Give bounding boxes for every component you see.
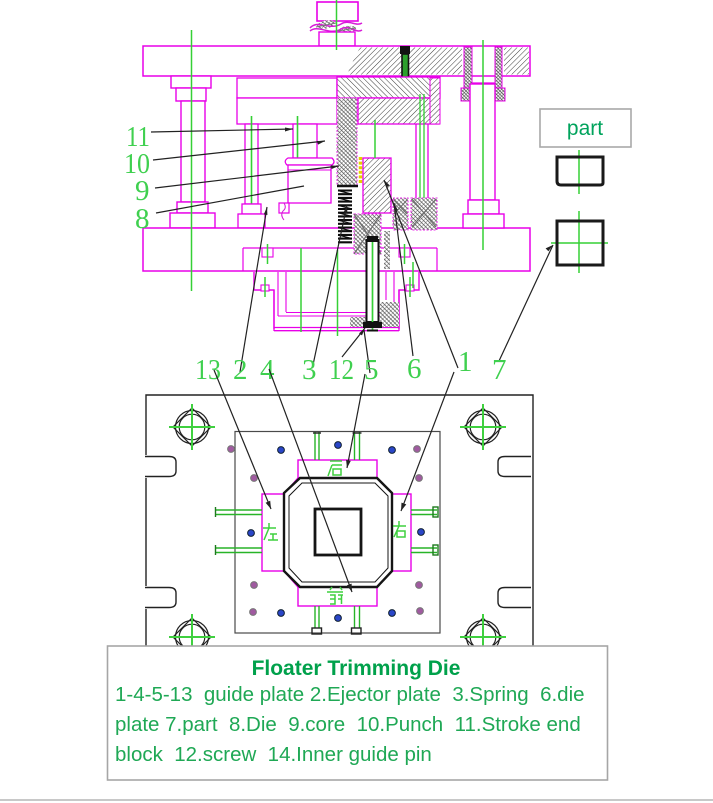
svg-text:7: 7 xyxy=(492,354,507,386)
svg-text:4: 4 xyxy=(260,354,275,386)
svg-text:2: 2 xyxy=(233,354,248,386)
svg-text:12: 12 xyxy=(329,354,354,386)
svg-text:block 12.screw 14.Inner guid: block 12.screw 14.Inner guide pin xyxy=(115,743,432,766)
svg-text:13: 13 xyxy=(195,354,221,386)
svg-text:1-4-5-13 guide plate 2.Ejecto: 1-4-5-13 guide plate 2.Ejector plate 3.S… xyxy=(115,683,585,706)
svg-text:5: 5 xyxy=(364,354,379,386)
svg-text:6: 6 xyxy=(407,353,422,385)
svg-text:plate 7.part 8.Die 9.core 1: plate 7.part 8.Die 9.core 10.Punch 11.St… xyxy=(115,713,581,736)
svg-text:part: part xyxy=(567,117,603,140)
svg-text:8: 8 xyxy=(135,203,150,235)
svg-text:3: 3 xyxy=(302,354,317,386)
svg-text:1: 1 xyxy=(458,346,473,378)
svg-text:Floater Trimming Die: Floater Trimming Die xyxy=(252,657,461,680)
